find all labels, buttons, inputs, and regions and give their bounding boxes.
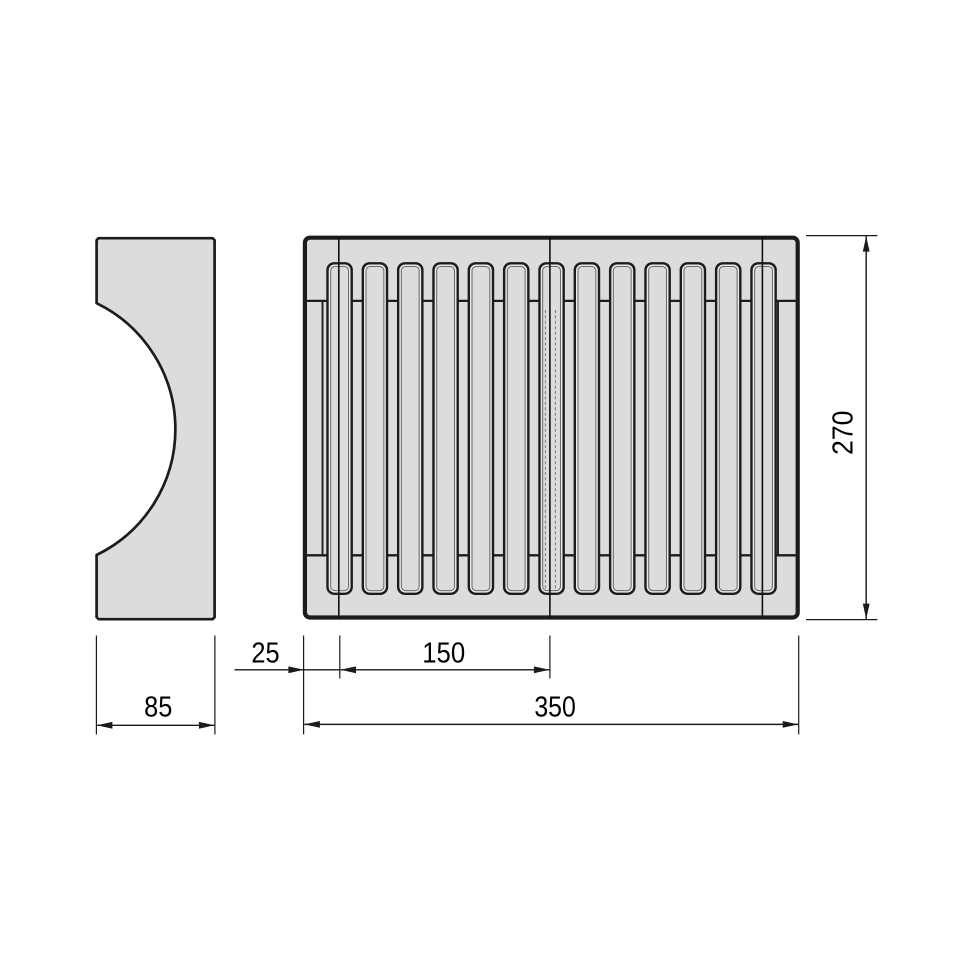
svg-text:85: 85 [144, 692, 172, 724]
svg-text:150: 150 [422, 637, 465, 669]
svg-text:25: 25 [251, 638, 279, 670]
svg-text:270: 270 [827, 411, 859, 456]
svg-text:350: 350 [534, 691, 576, 723]
